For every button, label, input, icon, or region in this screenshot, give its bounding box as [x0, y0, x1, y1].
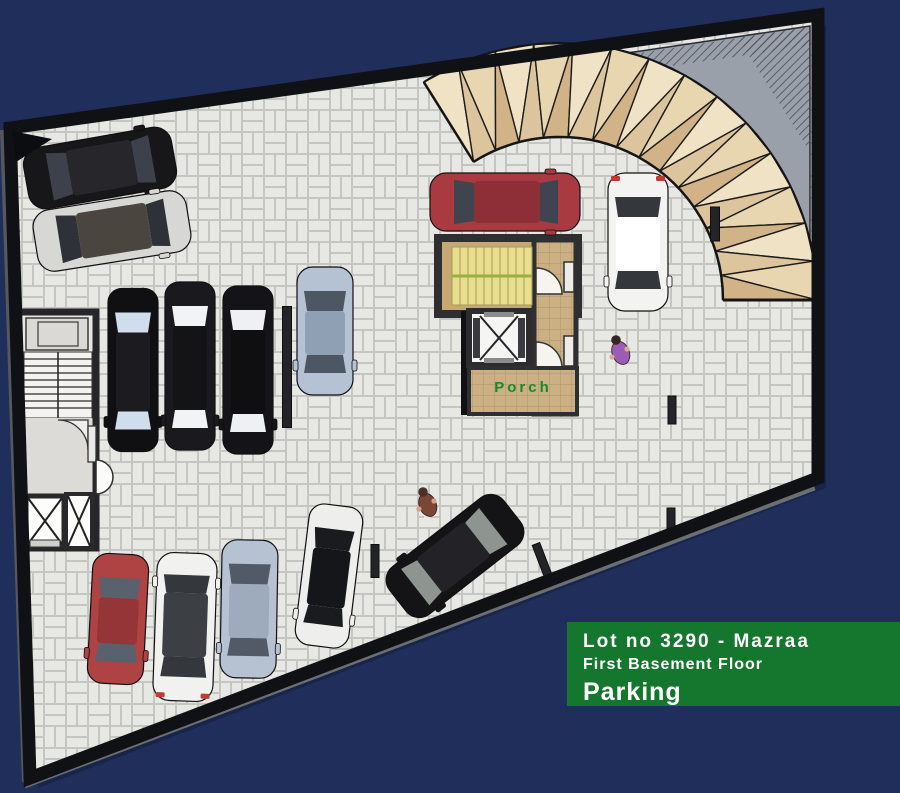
- door-leaf-lower: [564, 336, 574, 366]
- red-car-bottom: [83, 552, 154, 685]
- white-van-bottom: [148, 552, 221, 702]
- left-door-leaf: [88, 426, 96, 462]
- red-car-top: [430, 169, 580, 235]
- left-core: [18, 312, 113, 548]
- staircase-center: [452, 247, 532, 305]
- blue-gray-car-bottom: [216, 539, 282, 678]
- staircase-left: [24, 352, 92, 418]
- black-car-row-1: [104, 289, 162, 452]
- left-elevators: [26, 494, 92, 548]
- parking-floor-plan: Porch Lot no 3290 - Mazraa First Basemen…: [0, 0, 900, 793]
- porch-label: Porch: [470, 379, 576, 396]
- door-leaf-upper: [564, 262, 574, 292]
- info-box: Lot no 3290 - Mazraa First Basement Floo…: [567, 622, 900, 706]
- black-car-row-3: [219, 286, 277, 454]
- left-stair-landing: [26, 318, 88, 350]
- info-lot-number: Lot no 3290 - Mazraa: [583, 631, 900, 653]
- white-suv-top: [604, 173, 672, 311]
- wheel-stop-6: [711, 207, 720, 241]
- info-floor-name: First Basement Floor: [583, 656, 900, 674]
- info-usage: Parking: [583, 678, 900, 707]
- wheel-stop-2: [371, 545, 379, 578]
- wheel-stop-4: [668, 396, 676, 424]
- blue-gray-car-upper: [293, 267, 357, 395]
- wheel-stop-1: [283, 307, 292, 428]
- black-car-row-2: [161, 282, 219, 450]
- elevator-center: [469, 311, 529, 365]
